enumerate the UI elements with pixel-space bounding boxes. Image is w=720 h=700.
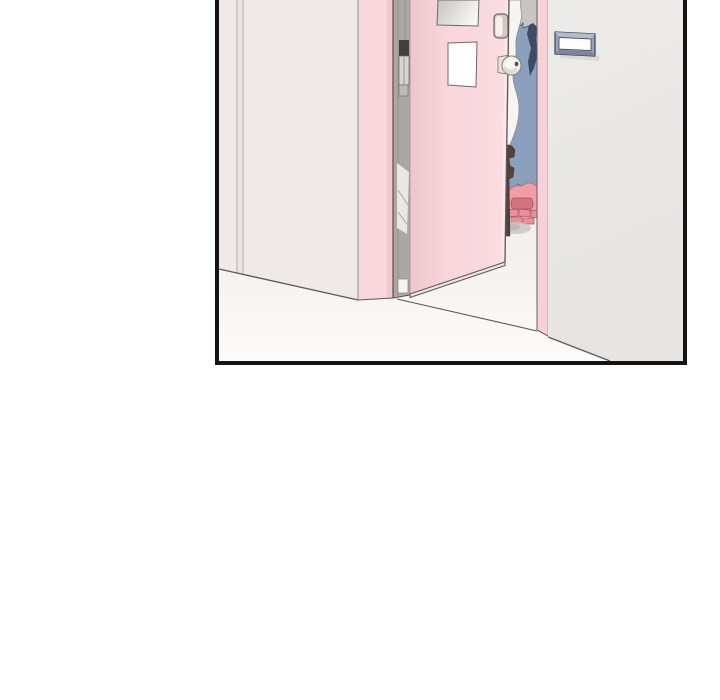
door-frame-left-jamb [358, 0, 393, 300]
comic-panel [215, 0, 687, 365]
name-plate-inner [559, 38, 591, 51]
door-knob-keyhole [515, 62, 519, 66]
right-wall [548, 0, 683, 361]
door-latch-plate [494, 14, 508, 38]
door-hinge-strip [393, 0, 410, 298]
jamb-inner-facet [387, 0, 393, 299]
hallway-scene [219, 0, 683, 361]
hinge-small-piece [399, 85, 408, 96]
name-plate [555, 32, 599, 61]
left-wall [219, 0, 358, 300]
slipper-brick-2 [519, 209, 530, 217]
door-window-frosted [437, 0, 479, 26]
open-door [410, 0, 521, 298]
hinge-gap-white-patch [397, 163, 409, 234]
door-window-clear [448, 42, 477, 87]
slipper-tongue [511, 198, 533, 209]
hinge-dark-block [399, 40, 409, 56]
door-stop-white [398, 279, 408, 293]
door-frame-right-jamb [537, 0, 548, 336]
door-knob [498, 56, 521, 76]
left-wall-seam-fill [237, 0, 243, 274]
right-jamb-face [537, 0, 548, 336]
